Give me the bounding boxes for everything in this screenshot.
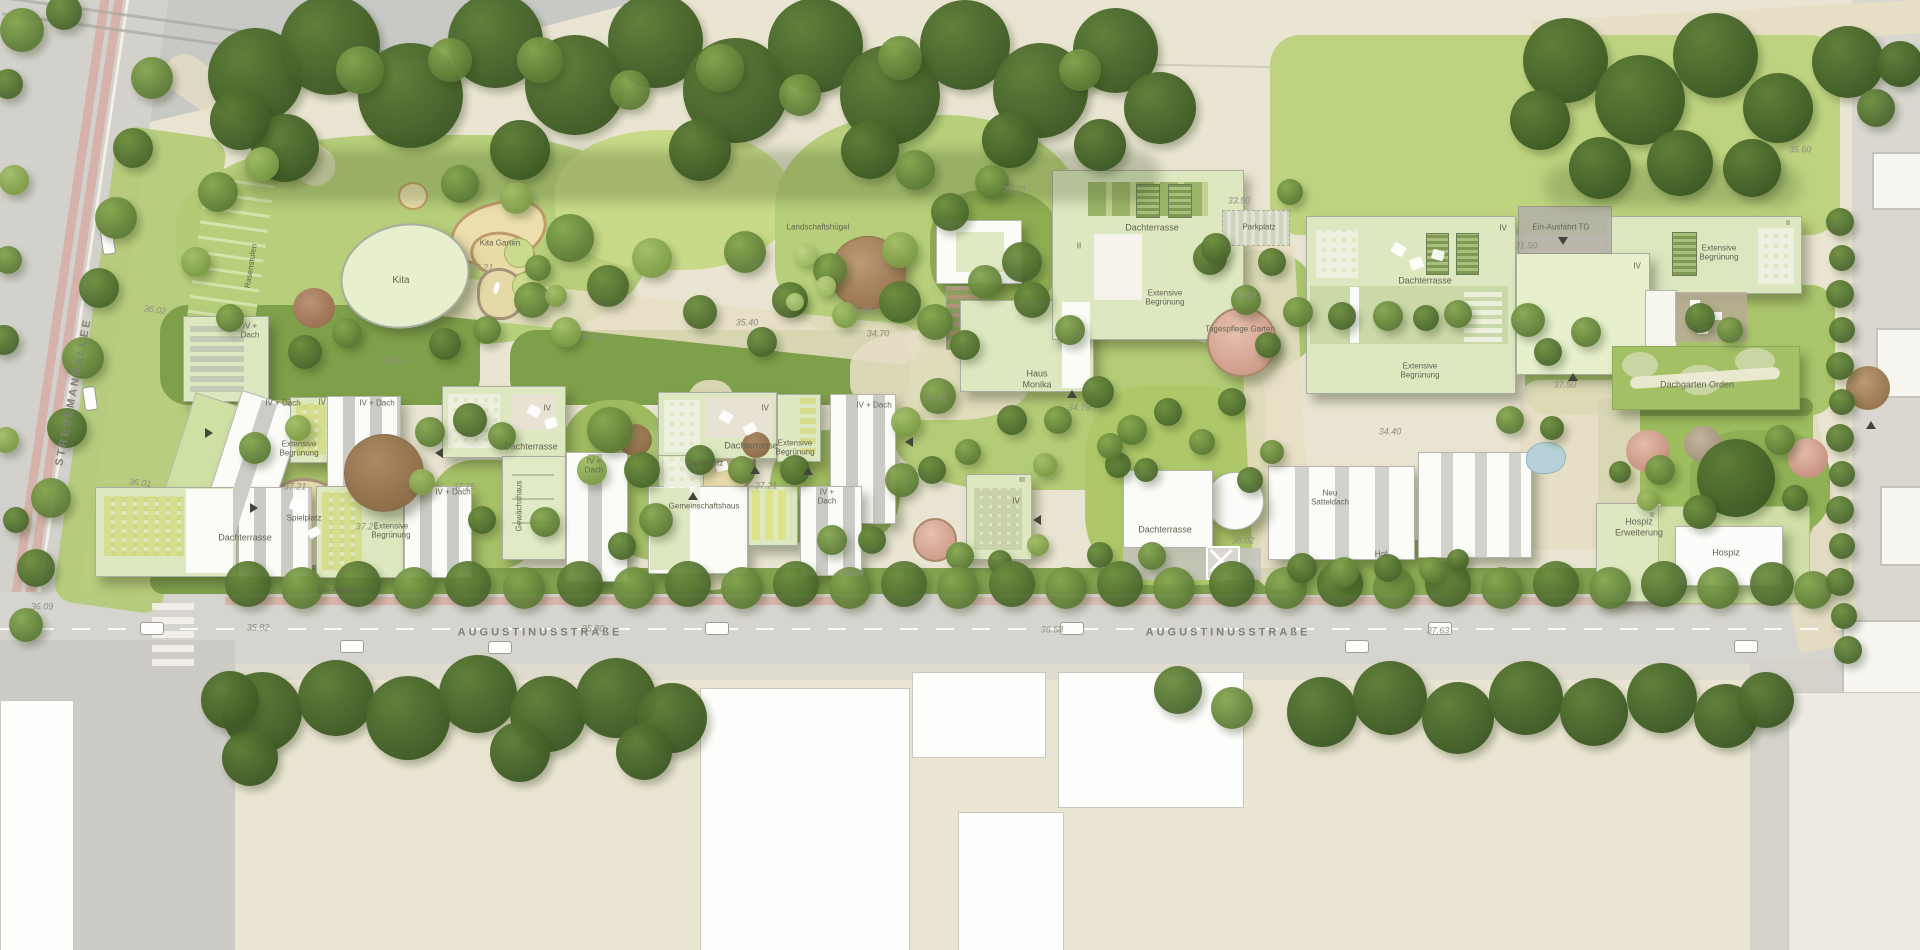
tree	[441, 165, 479, 203]
roof-beds	[104, 496, 184, 556]
neighbor-building	[958, 812, 1064, 950]
tree	[885, 463, 919, 497]
tree	[439, 655, 517, 733]
tree	[931, 193, 969, 231]
tree	[1413, 305, 1439, 331]
tree	[1422, 682, 1494, 754]
tree	[1444, 300, 1472, 328]
tree	[955, 439, 981, 465]
tree	[1834, 636, 1862, 664]
building-v1	[1268, 466, 1415, 560]
tree	[245, 147, 279, 181]
tree	[882, 232, 918, 268]
tree	[201, 671, 259, 729]
tree	[1826, 568, 1854, 596]
tree	[1765, 425, 1795, 455]
tree	[878, 36, 922, 80]
greenhouse	[1168, 184, 1192, 218]
tree	[1138, 542, 1166, 570]
tree	[503, 567, 545, 609]
tree	[31, 478, 71, 518]
building-v7	[1123, 470, 1213, 548]
tree	[1589, 567, 1631, 609]
tree	[665, 561, 711, 607]
direction-marker-icon	[688, 492, 698, 500]
tree	[881, 561, 927, 607]
tree	[685, 445, 715, 475]
tree	[216, 304, 244, 332]
tree	[1685, 303, 1715, 333]
tree	[415, 417, 445, 447]
tree	[1374, 554, 1402, 582]
tree	[1826, 424, 1854, 452]
roof-terrace	[706, 398, 772, 438]
tree	[490, 120, 550, 180]
tree	[982, 112, 1038, 168]
tree	[198, 172, 238, 212]
direction-marker-icon	[435, 448, 443, 458]
tree	[335, 561, 381, 607]
tree	[975, 165, 1009, 199]
tree	[1673, 13, 1758, 98]
tree	[1209, 561, 1255, 607]
tree	[1534, 338, 1562, 366]
tree	[968, 265, 1002, 299]
tree	[473, 316, 501, 344]
tree	[1683, 495, 1717, 529]
tree	[1153, 567, 1195, 609]
tree	[1258, 248, 1286, 276]
tree	[858, 526, 886, 554]
tree	[79, 268, 119, 308]
tree	[1260, 440, 1284, 464]
tree	[285, 415, 311, 441]
tree	[1511, 303, 1545, 337]
tree	[113, 128, 153, 168]
tree	[895, 150, 935, 190]
tree	[453, 403, 487, 437]
tree	[225, 561, 271, 607]
tree	[336, 46, 384, 94]
lane-dashes	[0, 628, 1920, 630]
tree	[1627, 663, 1697, 733]
tree	[1829, 389, 1855, 415]
tree	[1641, 561, 1687, 607]
neighbor-building	[1872, 152, 1920, 210]
tree	[131, 57, 173, 99]
tree	[937, 567, 979, 609]
tree	[696, 44, 744, 92]
direction-marker-icon	[750, 466, 760, 474]
tree	[298, 660, 374, 736]
tree	[1826, 280, 1854, 308]
tree	[409, 469, 435, 495]
tree	[1059, 49, 1101, 91]
tree	[1826, 352, 1854, 380]
hill-brown	[742, 432, 770, 458]
tree	[1829, 245, 1855, 271]
tree	[587, 407, 633, 453]
tree	[616, 724, 672, 780]
tree	[1134, 458, 1158, 482]
car-icon	[1345, 640, 1369, 653]
tree	[525, 255, 551, 281]
tree	[545, 285, 567, 307]
tree	[1373, 301, 1403, 331]
tree	[1055, 315, 1085, 345]
tree	[393, 567, 435, 609]
tree	[1496, 406, 1524, 434]
tree	[683, 295, 717, 329]
tree	[918, 456, 946, 484]
tree	[639, 503, 673, 537]
tree	[517, 37, 563, 83]
tree	[1738, 672, 1794, 728]
tree	[829, 567, 871, 609]
tree	[613, 567, 655, 609]
tree	[1489, 661, 1563, 735]
direction-marker-icon	[205, 428, 213, 438]
neighbor-building	[912, 672, 1046, 758]
tree	[1027, 534, 1049, 556]
tree	[530, 507, 560, 537]
tree	[1877, 41, 1920, 87]
court-e1	[1094, 234, 1142, 300]
tree	[920, 378, 956, 414]
tree	[281, 567, 323, 609]
tree	[17, 549, 55, 587]
tree	[1231, 285, 1261, 315]
car-icon	[340, 640, 364, 653]
direction-marker-icon	[1067, 390, 1077, 398]
tree	[1481, 567, 1523, 609]
tree	[1447, 549, 1469, 571]
direction-marker-icon	[1866, 421, 1876, 429]
tree	[1124, 72, 1196, 144]
roof-grid	[974, 488, 1022, 550]
tree	[1044, 406, 1072, 434]
tree	[832, 302, 858, 328]
roof-beds	[800, 398, 816, 454]
tree	[608, 532, 636, 560]
car-icon	[488, 641, 512, 654]
building-v2	[1418, 452, 1532, 558]
direction-marker-icon	[250, 503, 258, 513]
tree	[917, 304, 953, 340]
car-icon	[1734, 640, 1758, 653]
tree	[1154, 398, 1182, 426]
tree	[1533, 561, 1579, 607]
tree	[1782, 485, 1808, 511]
tree	[1826, 208, 1854, 236]
bush	[1622, 352, 1658, 378]
tree	[1569, 137, 1631, 199]
tree	[239, 432, 271, 464]
car-icon	[1428, 622, 1452, 635]
neighbor-building	[1880, 486, 1920, 566]
tree	[1826, 496, 1854, 524]
tree	[1283, 297, 1313, 327]
tree	[1329, 557, 1359, 587]
neighbor-building	[700, 688, 910, 950]
tree	[747, 327, 777, 357]
tree	[1645, 455, 1675, 485]
tree	[288, 335, 322, 369]
tree	[1033, 453, 1057, 477]
tree	[514, 282, 550, 318]
tg-ramp	[1518, 206, 1612, 254]
direction-marker-icon	[1558, 237, 1568, 245]
tree	[779, 74, 821, 116]
tree	[1287, 553, 1317, 583]
tree	[1014, 282, 1050, 318]
tree	[1829, 317, 1855, 343]
tree	[773, 561, 819, 607]
tree	[1750, 562, 1794, 606]
tree	[724, 231, 766, 273]
tree	[490, 722, 550, 782]
tree	[557, 561, 603, 607]
roof-beds	[1316, 230, 1358, 278]
car-icon	[140, 622, 164, 635]
tree	[0, 165, 29, 195]
tree	[1510, 90, 1570, 150]
tree	[1609, 461, 1631, 483]
tree	[1287, 677, 1357, 747]
tree	[721, 567, 763, 609]
tree	[950, 330, 980, 360]
tree	[1074, 119, 1126, 171]
hill-brown	[293, 288, 335, 328]
greenhouse	[1672, 232, 1697, 276]
tree	[445, 561, 491, 607]
tree	[95, 197, 137, 239]
tree	[1201, 233, 1231, 263]
tree	[210, 90, 270, 150]
tree	[222, 730, 278, 786]
direction-marker-icon	[905, 437, 913, 447]
tree	[577, 455, 607, 485]
tree	[1812, 26, 1884, 98]
tree	[841, 121, 899, 179]
tree	[989, 561, 1035, 607]
tree	[47, 408, 87, 448]
tree	[488, 422, 516, 450]
tree	[1255, 332, 1281, 358]
tree	[1218, 388, 1246, 416]
tree	[1328, 302, 1356, 330]
roof-grid	[190, 324, 244, 392]
roof-beds	[752, 490, 792, 540]
tree	[1277, 179, 1303, 205]
label: 34.40	[1379, 427, 1402, 438]
neighbor-building	[1788, 692, 1920, 950]
tree	[1743, 73, 1813, 143]
tree	[632, 238, 672, 278]
tree	[1045, 567, 1087, 609]
site-plan-canvas: STRESEMANNALLEE AUGUSTINUSSTRAßE STRESEM…	[0, 0, 1920, 950]
roof-beds	[1758, 228, 1794, 284]
tree	[1717, 317, 1743, 343]
car-icon	[1060, 622, 1084, 635]
tree	[879, 281, 921, 323]
tree	[551, 317, 581, 347]
tree	[468, 506, 496, 534]
tree	[546, 214, 594, 262]
tree	[1723, 139, 1781, 197]
tree	[1637, 489, 1659, 511]
bike-lane-bottom	[225, 597, 865, 605]
water-feature	[1526, 442, 1566, 474]
roof-beds	[322, 492, 362, 570]
tree	[181, 247, 211, 277]
tree	[817, 525, 847, 555]
direction-marker-icon	[1033, 515, 1041, 525]
neighbor-building	[0, 700, 74, 950]
tree	[946, 542, 974, 570]
tree	[891, 407, 921, 437]
building-w7-white	[186, 489, 233, 573]
direction-marker-icon	[803, 467, 813, 475]
tree	[1082, 376, 1114, 408]
tree	[500, 182, 532, 214]
tree	[1154, 666, 1202, 714]
tree	[1097, 561, 1143, 607]
parkplatz-lot	[1222, 210, 1290, 246]
tree	[997, 405, 1027, 435]
tree	[1829, 533, 1855, 559]
direction-marker-icon	[1568, 373, 1578, 381]
tree	[1647, 130, 1713, 196]
tree	[1829, 461, 1855, 487]
tree	[1353, 661, 1427, 735]
tree	[366, 676, 450, 760]
tree	[1097, 433, 1123, 459]
tree	[786, 293, 804, 311]
tree	[1419, 557, 1445, 583]
tree	[332, 318, 362, 348]
car-icon	[705, 622, 729, 635]
tree	[428, 38, 472, 82]
tree	[1237, 467, 1263, 493]
tree	[794, 244, 816, 266]
tree	[1002, 242, 1042, 282]
tree	[1571, 317, 1601, 347]
tree	[62, 337, 104, 379]
tree	[429, 328, 461, 360]
tree	[610, 70, 650, 110]
tree	[1211, 687, 1253, 729]
tree	[1831, 603, 1857, 629]
tree	[587, 265, 629, 307]
tree	[1560, 678, 1628, 746]
tree	[9, 608, 43, 642]
tree	[669, 119, 731, 181]
tree	[1857, 89, 1895, 127]
tree	[0, 8, 44, 52]
tree	[3, 507, 29, 533]
tree	[1697, 567, 1739, 609]
tree	[1540, 416, 1564, 440]
tree	[816, 276, 836, 296]
tree	[624, 452, 660, 488]
greenhouse	[1456, 233, 1479, 275]
tree	[1189, 429, 1215, 455]
roof-beds	[664, 400, 700, 452]
